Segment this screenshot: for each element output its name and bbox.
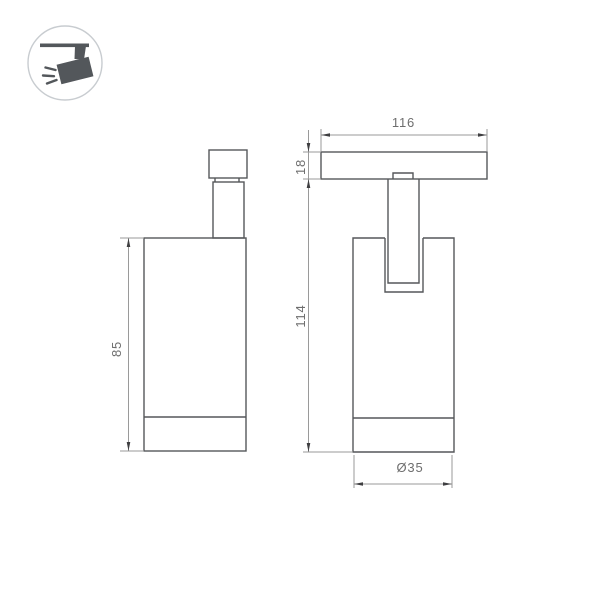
front-neck-tab [393, 173, 413, 179]
arrow-18-114-shared [307, 179, 311, 188]
side-view [144, 150, 247, 451]
arrow-116-left [321, 133, 330, 137]
dim-track-thickness-label: 18 [293, 159, 308, 175]
dimension-labels: 85 116 18 114 Ø35 [109, 115, 423, 475]
arrow-d35-left [354, 482, 363, 486]
dim-overall-height-label: 114 [293, 304, 308, 327]
dim-track-width-label: 116 [392, 115, 415, 130]
arrow-114-bottom [307, 443, 311, 452]
front-stem [388, 179, 419, 283]
side-track-adapter [209, 150, 247, 178]
drawing-canvas: 85 116 18 114 Ø35 [0, 0, 600, 600]
arrow-d35-right [443, 482, 452, 486]
dim-diameter-label: Ø35 [397, 460, 424, 475]
product-type-badge [28, 26, 102, 100]
object-outlines [144, 150, 487, 452]
arrow-18-top [307, 143, 311, 152]
arrow-116-right [478, 133, 487, 137]
dim-body-height-label: 85 [109, 341, 124, 357]
front-yoke-slot [385, 238, 423, 292]
arrow-85-top [127, 238, 131, 247]
front-view [321, 152, 487, 452]
front-body [353, 238, 454, 452]
front-track-bar [321, 152, 487, 179]
technical-drawing: 85 116 18 114 Ø35 [0, 0, 600, 600]
side-stem [213, 182, 244, 238]
arrow-85-bottom [127, 442, 131, 451]
side-body [144, 238, 246, 451]
icon-mount-stem [75, 46, 87, 60]
